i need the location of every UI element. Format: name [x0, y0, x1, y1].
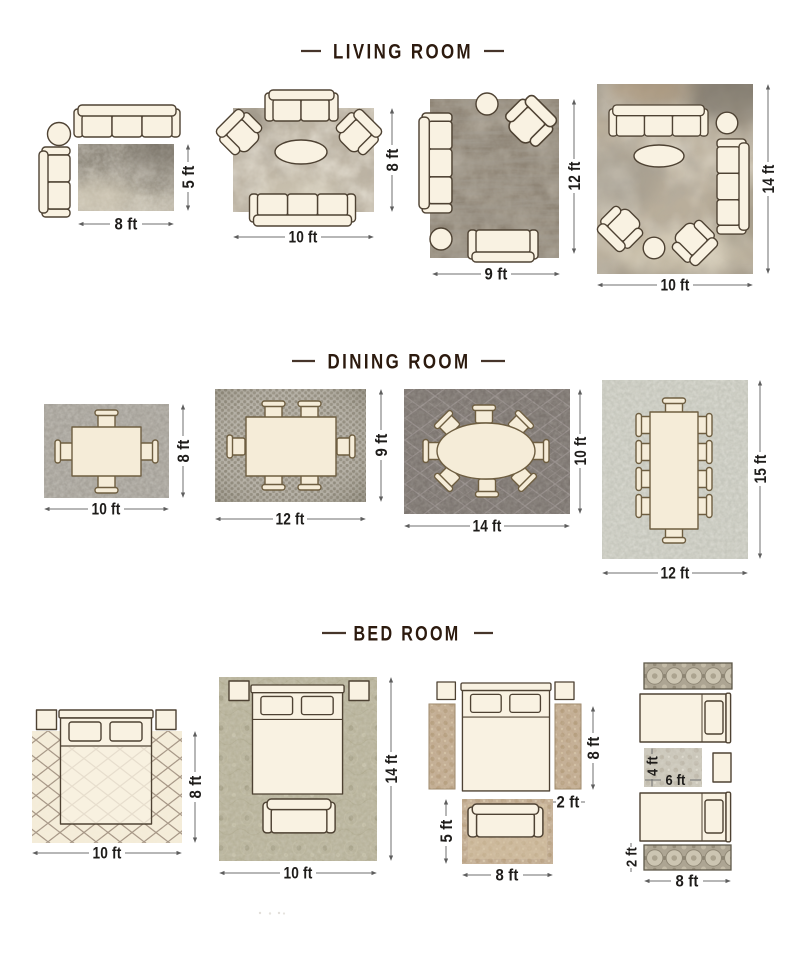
svg-text:9 ft: 9 ft	[485, 265, 508, 284]
svg-text:5 ft: 5 ft	[179, 165, 198, 188]
svg-text:8 ft: 8 ft	[115, 215, 138, 234]
svg-text:8 ft: 8 ft	[584, 736, 603, 759]
svg-text:DINING ROOM: DINING ROOM	[328, 351, 471, 374]
svg-text:10 ft: 10 ft	[289, 228, 318, 247]
svg-text:8 ft: 8 ft	[496, 866, 519, 885]
svg-text:6 ft: 6 ft	[666, 772, 686, 789]
svg-text:8 ft: 8 ft	[186, 775, 205, 798]
svg-text:8 ft: 8 ft	[676, 872, 699, 891]
svg-text:BED ROOM: BED ROOM	[354, 623, 461, 646]
svg-text:14 ft: 14 ft	[382, 754, 401, 783]
svg-text:4 ft: 4 ft	[644, 756, 661, 776]
svg-text:5 ft: 5 ft	[437, 819, 456, 842]
svg-text:14 ft: 14 ft	[759, 164, 778, 193]
svg-text:8 ft: 8 ft	[383, 148, 402, 171]
svg-text:2 ft: 2 ft	[557, 793, 580, 812]
svg-text:9 ft: 9 ft	[372, 433, 391, 456]
svg-text:10 ft: 10 ft	[93, 844, 122, 863]
svg-text:12 ft: 12 ft	[565, 161, 584, 190]
svg-text:10 ft: 10 ft	[284, 864, 313, 883]
svg-text:2 ft: 2 ft	[623, 847, 640, 867]
svg-text:10 ft: 10 ft	[571, 436, 590, 465]
svg-text:10 ft: 10 ft	[92, 500, 121, 519]
svg-text:14 ft: 14 ft	[473, 517, 502, 536]
svg-text:8 ft: 8 ft	[174, 439, 193, 462]
svg-text:10 ft: 10 ft	[661, 276, 690, 295]
svg-text:15 ft: 15 ft	[751, 454, 770, 483]
svg-text:12 ft: 12 ft	[661, 564, 690, 583]
svg-text:LIVING ROOM: LIVING ROOM	[333, 41, 473, 64]
svg-text:12 ft: 12 ft	[276, 510, 305, 529]
